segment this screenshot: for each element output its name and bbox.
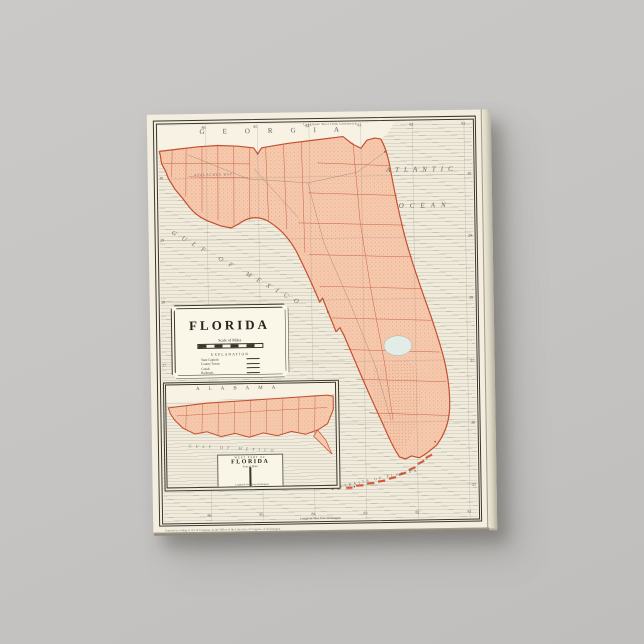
lake-okeechobee xyxy=(383,335,411,355)
list-item: 84 xyxy=(311,511,315,516)
list-item: 85 xyxy=(253,124,257,129)
list-item: 83 xyxy=(357,122,361,127)
title-cartouche: FLORIDA Scale of Miles EXPLANATION State… xyxy=(170,303,289,379)
canvas-face: GEORGIA Longitude West from Greenwich AT… xyxy=(147,109,489,532)
inset-map-inner: ALABAMA GULF OF MEXICO WEST PART OF FLOR… xyxy=(165,382,338,489)
inset-land-texture xyxy=(168,395,334,438)
list-item: 30 xyxy=(159,175,163,180)
map-outer-frame: GEORGIA Longitude West from Greenwich AT… xyxy=(153,116,482,527)
list-item: 82 xyxy=(415,509,419,514)
list-item: 27 xyxy=(162,362,166,367)
inset-coastal-spit xyxy=(314,430,332,455)
list-item: 82 xyxy=(409,122,413,127)
list-item: 85 xyxy=(259,512,263,517)
list-item: 86 xyxy=(207,513,211,518)
list-item: 81 xyxy=(461,121,465,126)
scale-bar xyxy=(197,343,263,349)
page-background: { "scene": { "product": "Gallery wrapped… xyxy=(0,0,644,644)
apalachee-bay-label: APALACHEE BAY xyxy=(194,172,233,177)
explanation-legend: State CapitalsCounty TownsCanalsRailroad… xyxy=(201,356,259,375)
list-item: 81 xyxy=(467,509,471,514)
scale-of-miles-label: Scale of Miles xyxy=(175,336,285,343)
list-item: 25 xyxy=(472,482,476,487)
list-item: 28 xyxy=(161,300,165,305)
list-item: 84 xyxy=(305,123,309,128)
list-item: 30 xyxy=(467,170,471,175)
list-item: 27 xyxy=(470,357,474,362)
atlantic-label: ATLANTIC xyxy=(386,164,458,173)
map-area: GEORGIA Longitude West from Greenwich AT… xyxy=(157,120,477,522)
list-item: 29 xyxy=(468,233,472,238)
canvas-print: GEORGIA Longitude West from Greenwich AT… xyxy=(147,109,498,535)
map-title: FLORIDA xyxy=(174,316,284,334)
list-item: 83 xyxy=(363,510,367,515)
list-item: 29 xyxy=(160,237,164,242)
title-cartouche-inner: FLORIDA Scale of Miles EXPLANATION State… xyxy=(173,306,286,376)
list-item: 26 xyxy=(471,420,475,425)
ocean-label: OCEAN xyxy=(399,200,452,209)
list-item: 28 xyxy=(469,295,473,300)
list-item: Railroads xyxy=(201,370,259,376)
inset-map: ALABAMA GULF OF MEXICO WEST PART OF FLOR… xyxy=(162,379,340,491)
list-item: 86 xyxy=(201,125,205,130)
map-inner-frame: GEORGIA Longitude West from Greenwich AT… xyxy=(155,118,479,524)
